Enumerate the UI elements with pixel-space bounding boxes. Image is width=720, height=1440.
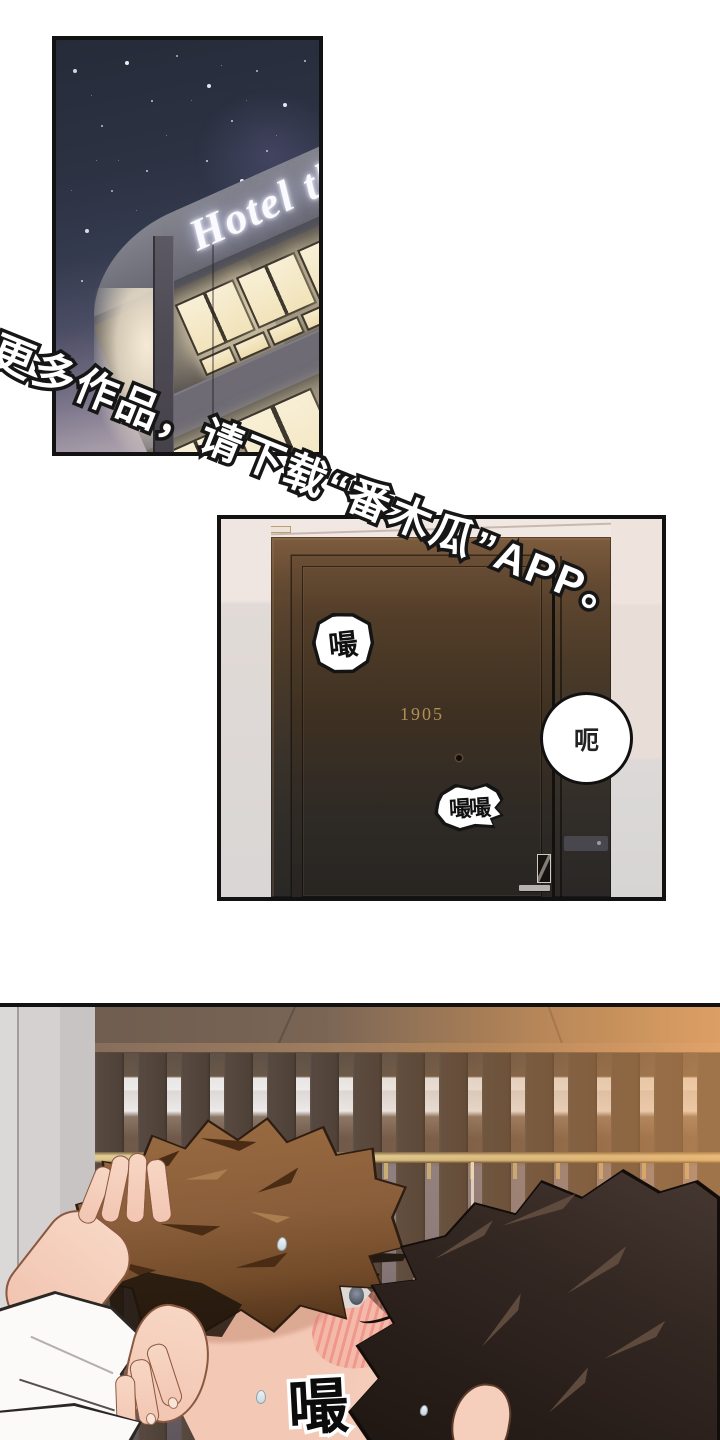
closet-top-rail (0, 1043, 720, 1053)
lit-window (319, 349, 323, 456)
kiss-panel: 嘬 (0, 1003, 720, 1440)
closet-header (0, 1007, 720, 1048)
comic-page: Hotel th (0, 0, 720, 1440)
brown-hair-man-iris (349, 1286, 364, 1305)
door-lock-keypad (537, 854, 551, 883)
sfx-kiss-text: 嘬 (313, 613, 373, 673)
sfx-kiss-double-text: 嘬嘬 (436, 785, 501, 829)
strike-plate-dot (597, 841, 601, 845)
corridor-wall-left (221, 519, 271, 897)
cuff-fold (31, 1336, 114, 1374)
door-handle (519, 885, 550, 891)
sfx-kiss-large: 嘬 (286, 1357, 350, 1440)
finger (125, 1153, 148, 1224)
speech-bubble-grunt: 呃 (540, 692, 633, 785)
peephole (456, 755, 462, 761)
stars-dim (56, 40, 57, 41)
frame-strike-plate (564, 836, 608, 851)
door-slab: 1905 (292, 556, 552, 897)
room-number: 1905 (292, 704, 552, 725)
